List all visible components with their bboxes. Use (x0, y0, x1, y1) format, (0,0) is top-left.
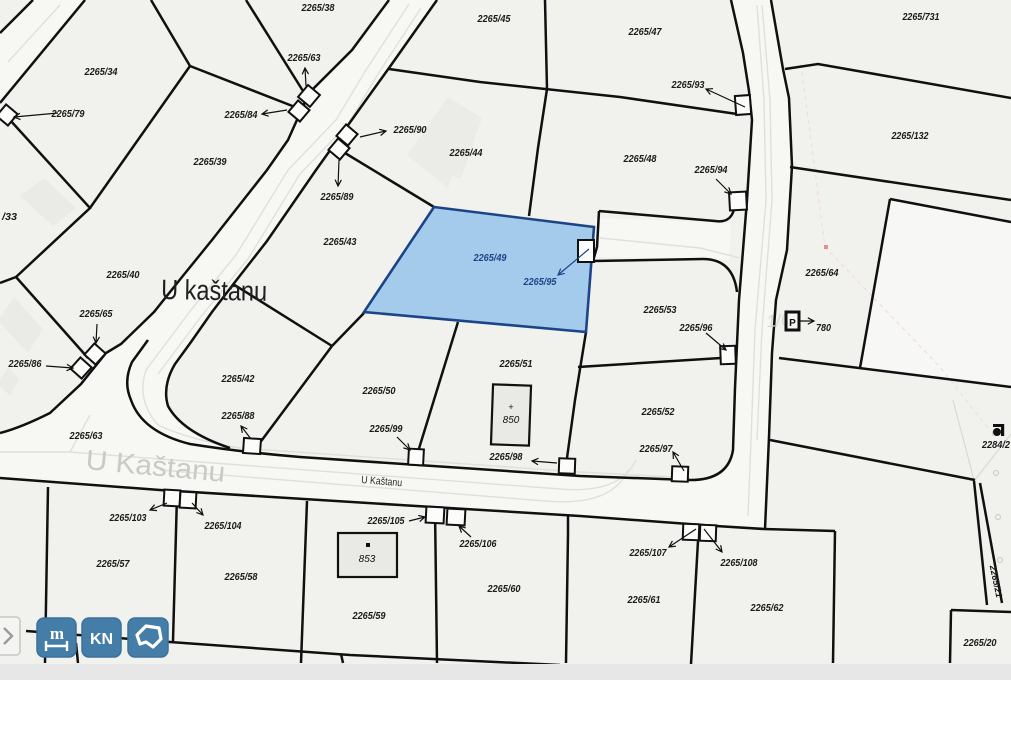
svg-text:2265/49: 2265/49 (473, 253, 507, 264)
svg-text:2265/89: 2265/89 (320, 192, 354, 203)
svg-text:2265/65: 2265/65 (79, 309, 113, 320)
svg-text:2265/20: 2265/20 (963, 638, 997, 649)
svg-text:2265/107: 2265/107 (629, 548, 668, 559)
svg-text:2265/86: 2265/86 (8, 359, 42, 370)
svg-text:853: 853 (359, 554, 376, 565)
svg-text:2265/57: 2265/57 (96, 559, 131, 570)
svg-text:2265/52: 2265/52 (641, 407, 675, 418)
svg-text:2265/103: 2265/103 (109, 513, 147, 524)
svg-text:2265/44: 2265/44 (449, 148, 483, 159)
svg-text:2265/94: 2265/94 (694, 165, 728, 176)
svg-text:2265/39: 2265/39 (193, 157, 227, 168)
svg-text:KN: KN (90, 631, 113, 648)
svg-text:2265/47: 2265/47 (628, 27, 663, 38)
svg-text:2265/79: 2265/79 (51, 109, 85, 120)
svg-text:2265/97: 2265/97 (639, 444, 674, 455)
svg-text:P: P (789, 318, 796, 329)
svg-text:2265/106: 2265/106 (459, 539, 497, 550)
svg-text:850: 850 (503, 415, 520, 426)
svg-text:U kaštanu: U kaštanu (161, 274, 268, 307)
svg-text:2265/42: 2265/42 (221, 374, 255, 385)
svg-text:2265/60: 2265/60 (487, 584, 521, 595)
svg-text:2265/90: 2265/90 (393, 125, 427, 136)
svg-text:2265/58: 2265/58 (224, 572, 258, 583)
svg-text:2265/93: 2265/93 (671, 80, 705, 91)
svg-text:2265/63: 2265/63 (287, 53, 321, 64)
svg-text:2265/45: 2265/45 (477, 14, 511, 25)
svg-text:/33: /33 (1, 212, 17, 223)
svg-text:2265/40: 2265/40 (106, 270, 140, 281)
svg-text:2265/48: 2265/48 (623, 154, 657, 165)
svg-text:2265/104: 2265/104 (204, 521, 242, 532)
svg-text:2265/53: 2265/53 (643, 305, 677, 316)
svg-text:2265/95: 2265/95 (523, 277, 557, 288)
svg-text:2265/98: 2265/98 (489, 452, 523, 463)
svg-text:2265/34: 2265/34 (84, 67, 118, 78)
svg-text:2265/731: 2265/731 (902, 12, 940, 23)
svg-text:2265/50: 2265/50 (362, 386, 396, 397)
svg-text:2265/108: 2265/108 (720, 558, 758, 569)
svg-text:2265/63: 2265/63 (69, 431, 103, 442)
svg-text:2265/64: 2265/64 (805, 268, 839, 279)
svg-text:2265/105: 2265/105 (367, 516, 405, 527)
svg-text:2265/62: 2265/62 (750, 603, 784, 614)
svg-text:2265/132: 2265/132 (891, 131, 929, 142)
svg-text:2265/43: 2265/43 (323, 237, 357, 248)
svg-text:2265/38: 2265/38 (301, 3, 335, 14)
svg-text:2265/61: 2265/61 (627, 595, 661, 606)
svg-text:2265/84: 2265/84 (224, 110, 258, 121)
svg-text:2265/59: 2265/59 (352, 611, 386, 622)
svg-text:+: + (508, 402, 513, 412)
svg-text:2265/99: 2265/99 (369, 424, 403, 435)
svg-text:2265/88: 2265/88 (221, 411, 255, 422)
svg-text:2284/2: 2284/2 (981, 440, 1010, 451)
svg-text:2265/51: 2265/51 (499, 359, 533, 370)
svg-text:780: 780 (816, 323, 831, 334)
svg-text:2265/96: 2265/96 (679, 323, 713, 334)
svg-text:m: m (50, 624, 64, 643)
